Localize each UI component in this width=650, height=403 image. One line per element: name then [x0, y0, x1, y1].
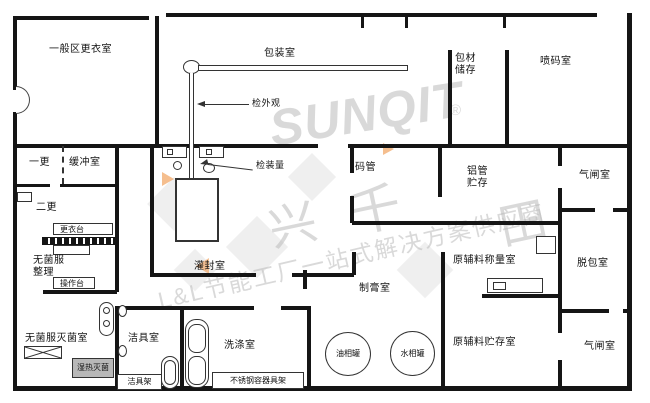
- wall: [558, 144, 562, 166]
- conveyor-line-vertical: [189, 73, 194, 178]
- wall: [281, 306, 309, 310]
- wall: [352, 221, 558, 225]
- sink-tub-inner: [164, 360, 176, 385]
- room-label-cleaning-tools: 洁具室: [128, 333, 160, 345]
- wall: [43, 290, 117, 294]
- room-label-depacking: 脱包室: [577, 258, 609, 270]
- room-label-buffer: 缓冲室: [69, 157, 101, 169]
- wall: [350, 144, 354, 173]
- annotation-check-fill: 检装量: [256, 160, 285, 171]
- basin: [118, 345, 127, 357]
- wall: [13, 184, 50, 187]
- watermark-shape: [226, 216, 288, 278]
- double-sink-basin: [188, 356, 206, 385]
- oil-phase-tank: 油相罐: [325, 332, 371, 376]
- room-label-weighing: 原辅料称量室: [453, 255, 516, 267]
- autoclave-crossed-box: [24, 346, 62, 359]
- wall: [627, 13, 632, 391]
- wall: [505, 50, 509, 145]
- curtain-divider: [62, 146, 64, 184]
- door-arc: [16, 86, 30, 114]
- double-sink-basin: [188, 324, 206, 353]
- room-label-garment-sterilizing: 无菌服灭菌室: [25, 333, 88, 345]
- water-phase-tank: 水相罐: [390, 331, 435, 376]
- room-label-general-changing: 一般区更衣室: [49, 44, 112, 56]
- wall: [13, 112, 17, 390]
- floor-plan: SUNQIT ® 兴 千 田 L&L节能工厂一站式解决方案供应商: [0, 0, 650, 403]
- wall: [348, 144, 632, 148]
- wall: [448, 50, 452, 145]
- equipment-label-gown-table: 更衣台: [60, 225, 84, 235]
- wall: [180, 306, 184, 388]
- wall: [60, 184, 117, 187]
- room-label-washing: 洗涤室: [224, 340, 256, 352]
- wall-stub: [503, 17, 506, 28]
- machine-unit-port: [206, 149, 212, 155]
- watermark-accent-triangle: [162, 172, 174, 186]
- wall: [558, 309, 609, 313]
- room-label-packing: 包装室: [264, 48, 296, 60]
- wall: [352, 252, 356, 275]
- wall: [438, 144, 442, 197]
- filling-machine: [175, 178, 219, 242]
- wash-station-basin: [103, 307, 110, 314]
- room-label-spray-code: 喷码室: [540, 56, 572, 68]
- wall-stub: [361, 17, 364, 28]
- wall: [350, 196, 354, 223]
- tool-rack: 洁具架: [117, 374, 162, 390]
- machine-unit: [162, 146, 187, 158]
- machine-dial: [173, 161, 182, 170]
- wall: [558, 208, 595, 212]
- stainless-rack: 不锈钢容器具架: [212, 372, 304, 389]
- cross-over-bench: [42, 237, 118, 245]
- room-label-material-storage: 包材 储存: [455, 53, 476, 77]
- wall: [115, 306, 254, 310]
- room-label-alu-tube-storage: 铝管 贮存: [467, 166, 488, 190]
- wall: [166, 13, 597, 17]
- wall: [441, 252, 445, 388]
- equipment-label-operation-table: 操作台: [60, 279, 84, 289]
- weighing-scale: [493, 282, 506, 290]
- room-label-airlock-top: 气闸室: [579, 170, 611, 182]
- conveyor-belt-horizontal: [198, 65, 408, 71]
- room-label-filling-sealing: 灌封室: [194, 261, 226, 273]
- moist-heat-sterilizer: 湿热灭菌: [72, 358, 114, 378]
- wall: [155, 16, 159, 145]
- wall: [292, 273, 354, 277]
- wall: [150, 144, 154, 274]
- wall: [13, 16, 149, 20]
- room-label-airlock-bottom: 气闸室: [584, 341, 616, 353]
- room-label-sterile-sorting: 无菌服 整理: [33, 255, 65, 279]
- room-label-second-change: 二更: [36, 202, 57, 214]
- room-label-cream-making: 制膏室: [359, 283, 391, 295]
- watermark-shape: [288, 153, 336, 201]
- room-label-tube-stacking: 码管: [355, 162, 376, 174]
- arrow-head-icon: [197, 101, 205, 107]
- wall: [558, 360, 562, 388]
- bench: [53, 245, 90, 255]
- wall: [150, 273, 256, 277]
- cross-lines: [25, 347, 61, 358]
- pallet-box: [536, 236, 556, 254]
- machine-unit-port: [167, 149, 173, 155]
- wall: [558, 188, 562, 333]
- wall: [13, 16, 17, 90]
- wall: [115, 144, 119, 292]
- bench: [17, 192, 32, 202]
- wash-station-basin: [103, 320, 110, 327]
- annotation-check-appearance: 检外观: [252, 98, 281, 109]
- arrow-line: [205, 104, 249, 105]
- wall-stub: [405, 17, 408, 28]
- wall: [482, 294, 560, 298]
- wall: [307, 306, 311, 388]
- wall: [13, 386, 632, 391]
- basin: [118, 305, 127, 317]
- wall-stub: [303, 270, 307, 289]
- room-label-first-change: 一更: [29, 157, 50, 169]
- watermark-char-1: 兴: [261, 182, 323, 260]
- room-label-raw-storage: 原辅料贮存室: [453, 337, 516, 349]
